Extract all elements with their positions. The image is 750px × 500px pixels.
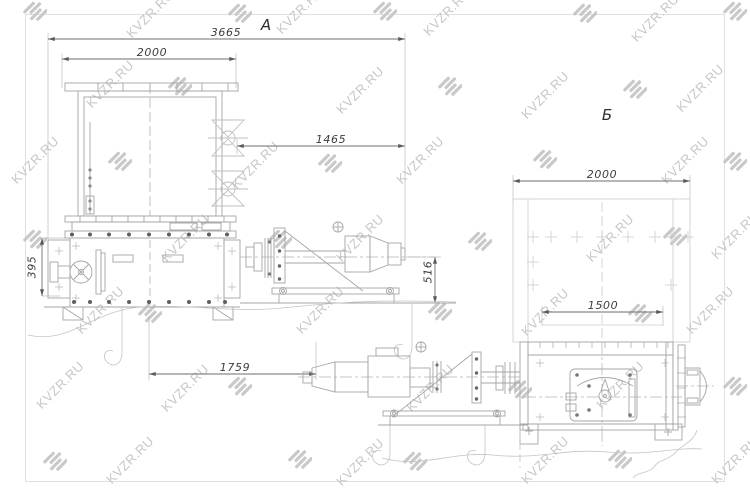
view-b-break-lines	[372, 425, 702, 478]
bolt-cross-marks	[527, 231, 694, 291]
technical-drawing	[0, 0, 750, 500]
left-shaft-coupling	[481, 362, 520, 394]
drawing-canvas: KVZR.RUKVZR.RUKVZR.RUKVZR.RUKVZR.RUKVZR.…	[0, 0, 750, 500]
view-a-flange	[65, 216, 236, 238]
view-b-body	[378, 342, 707, 444]
view-b-motor	[303, 342, 505, 425]
view-a-drive	[246, 222, 405, 303]
centerlines	[240, 257, 714, 446]
access-door	[566, 369, 637, 421]
view-a-tank	[65, 83, 248, 216]
extension-lines	[42, 33, 690, 380]
dimension-lines	[42, 39, 690, 374]
view-a-base	[44, 238, 456, 320]
view-b-top	[513, 199, 694, 342]
impeller-symbols	[208, 120, 248, 206]
inlet-fitting	[50, 250, 105, 294]
view-a-break-lines	[28, 301, 456, 365]
